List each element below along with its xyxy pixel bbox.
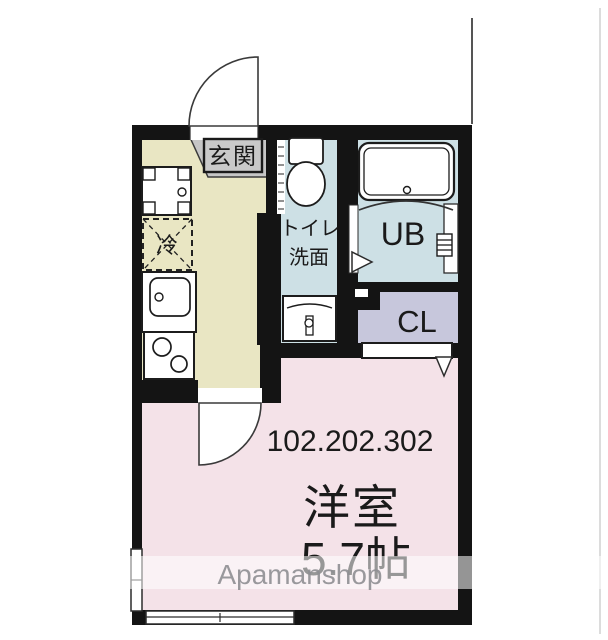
toilet-label: トイレ	[280, 218, 340, 240]
unit-bath-label: UB	[381, 216, 425, 252]
washer-drain-icon	[178, 188, 186, 196]
closet-door	[362, 343, 452, 358]
closet-wall-notch	[355, 289, 368, 297]
floor-plan: 玄関 トイレ 洗面 UB CL 冷 102.202.302 洋室 5.7帖 Ap…	[0, 0, 608, 640]
washroom-label: 洗面	[289, 246, 329, 269]
bath-handle-icon	[437, 234, 452, 256]
room-numbers: 102.202.302	[267, 425, 434, 458]
washbasin-faucet-icon	[305, 319, 313, 327]
room-door-opening	[198, 388, 262, 403]
entrance-door-swing	[189, 57, 258, 126]
toilet-bowl-icon	[287, 162, 325, 206]
wall-kitchen-toilet-pillar	[257, 213, 281, 345]
wall-below-basin	[280, 343, 362, 358]
wall-right	[458, 125, 472, 625]
wall-kitchen-bottom	[142, 380, 198, 403]
main-room-label: 洋室	[303, 481, 401, 534]
burner-icon	[153, 338, 171, 356]
stove-counter	[144, 332, 194, 379]
fridge-label: 冷	[156, 233, 178, 258]
bathtub-drain-icon	[404, 187, 411, 194]
faucet-icon	[155, 293, 163, 301]
watermark-strip: Apamanshop	[0, 556, 608, 590]
floor-plan-svg: 玄関 トイレ 洗面 UB CL 冷 102.202.302 洋室 5.7帖 Ap…	[0, 0, 608, 640]
toilet-tank-icon	[289, 138, 323, 164]
toilet-door	[277, 140, 285, 214]
wall-kitchen-toilet-upper	[266, 133, 278, 213]
burner-icon	[171, 356, 187, 372]
closet-label: CL	[397, 304, 437, 339]
wall-kitchen-toilet-lower	[260, 345, 281, 403]
kitchen-fixtures	[142, 167, 196, 379]
entrance-label: 玄関	[208, 143, 258, 169]
entrance-door-opening	[190, 125, 258, 140]
watermark-text: Apamanshop	[217, 559, 382, 590]
